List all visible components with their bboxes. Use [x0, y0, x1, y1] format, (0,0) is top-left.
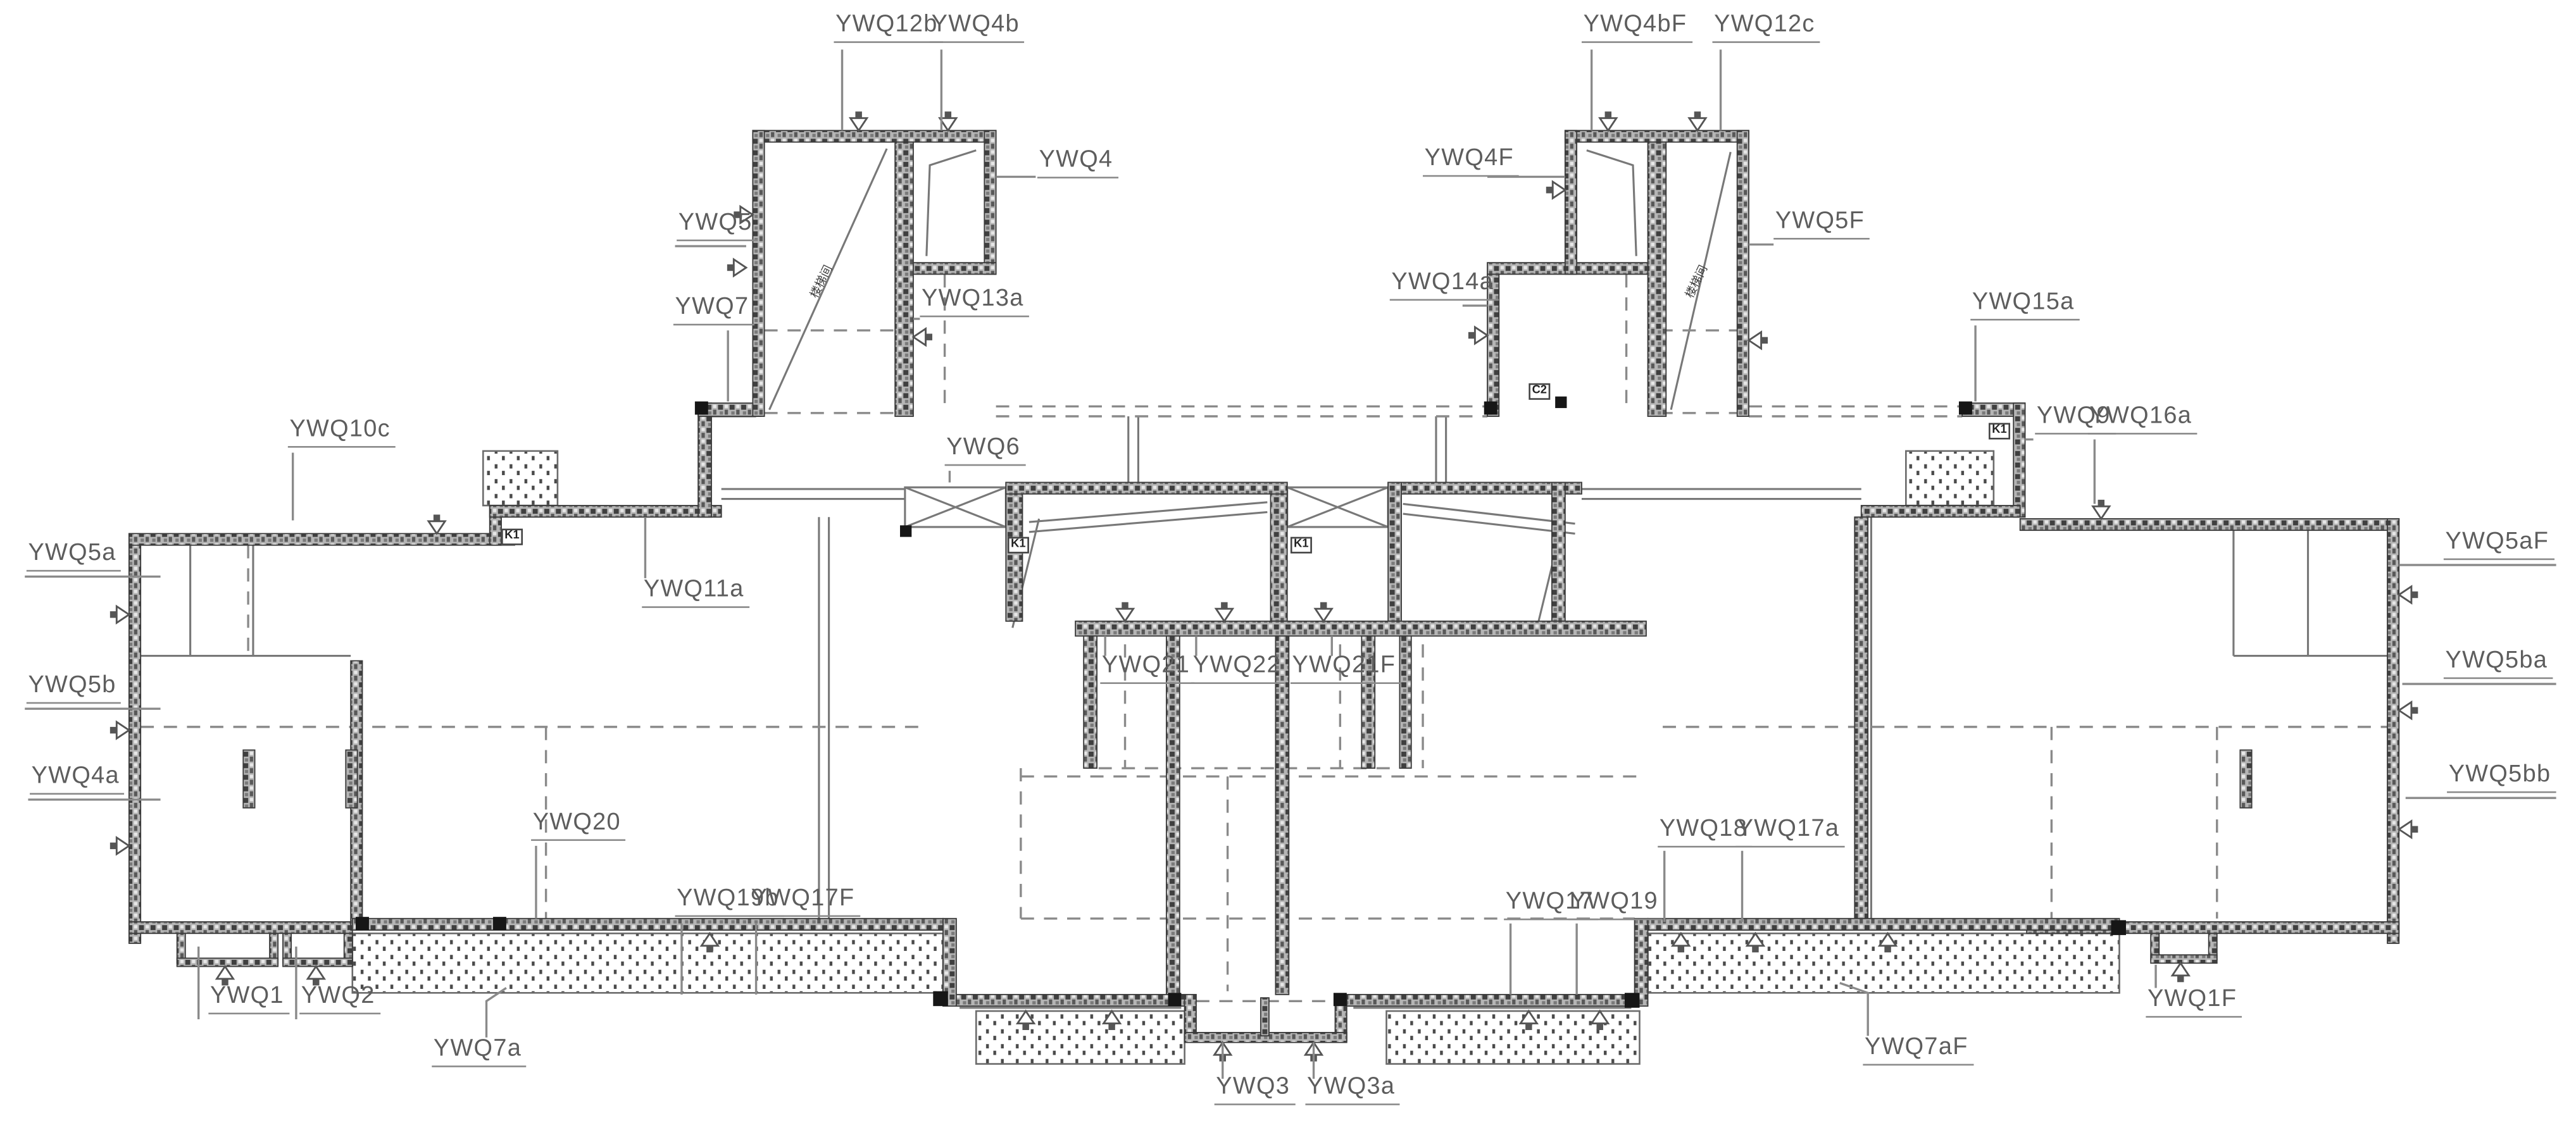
wall-label: YWQ12c — [1712, 13, 1820, 43]
wall-label: YWQ7aF — [1863, 1036, 1973, 1065]
wall-label: YWQ5b — [27, 674, 122, 704]
wall-label: YWQ14a — [1390, 271, 1499, 301]
wall-label: YWQ21 — [1100, 654, 1195, 684]
wall-label: YWQ13a — [920, 287, 1029, 317]
wall-label: YWQ7 — [673, 295, 754, 325]
wall-label: YWQ22 — [1191, 654, 1286, 684]
wall-label: YWQ17F — [749, 887, 860, 917]
wall-label: YWQ2 — [299, 984, 380, 1014]
wall-label: YWQ11a — [642, 578, 749, 608]
wall-label: YWQ5bb — [2447, 763, 2556, 793]
wall-label: YWQ19 — [1568, 890, 1663, 920]
wall-label: YWQ4 — [1037, 149, 1118, 178]
wall-label: YWQ21F — [1291, 654, 1401, 684]
wall-label: YWQ16a — [2088, 405, 2197, 435]
wall-label: YWQ10c — [288, 418, 396, 448]
wall-label: YWQ4b — [930, 13, 1025, 43]
wall-label: YWQ5 — [677, 211, 757, 241]
wall-label: YWQ15a — [1970, 291, 2079, 321]
wall-label: YWQ5F — [1773, 210, 1870, 240]
label-layer: YWQ12bYWQ4bYWQ4bFYWQ12cYWQ4YWQ4FYWQ5YWQ5… — [0, 0, 2576, 1130]
stair-annotation: 楼梯间 — [1682, 263, 1712, 301]
floor-plan: YWQ12bYWQ4bYWQ4bFYWQ12cYWQ4YWQ4FYWQ5YWQ5… — [0, 0, 2576, 1130]
wall-label: YWQ4a — [30, 765, 125, 795]
k1-tag: K1 — [501, 529, 523, 545]
wall-label: YWQ6 — [945, 436, 1025, 466]
k1-tag: K1 — [1291, 537, 1312, 554]
wall-label: YWQ17a — [1735, 817, 1844, 847]
wall-label: YWQ5aF — [2444, 530, 2554, 560]
k1-tag: K1 — [1008, 537, 1029, 554]
wall-label: YWQ4F — [1423, 147, 1519, 177]
wall-label: YWQ3a — [1305, 1076, 1400, 1105]
k1-tag: K1 — [1989, 423, 2010, 439]
wall-label: YWQ1F — [2146, 988, 2242, 1017]
wall-label: YWQ3 — [1215, 1076, 1295, 1105]
wall-label: YWQ20 — [531, 811, 626, 841]
wall-label: YWQ12b — [834, 13, 942, 43]
wall-label: YWQ7a — [432, 1038, 527, 1067]
c2-tag: C2 — [1529, 383, 1550, 400]
stair-annotation: 楼梯间 — [806, 263, 837, 301]
wall-label: YWQ5ba — [2444, 649, 2553, 679]
wall-label: YWQ1 — [208, 984, 289, 1014]
wall-label: YWQ4bF — [1582, 13, 1692, 43]
wall-label: YWQ5a — [27, 542, 122, 571]
